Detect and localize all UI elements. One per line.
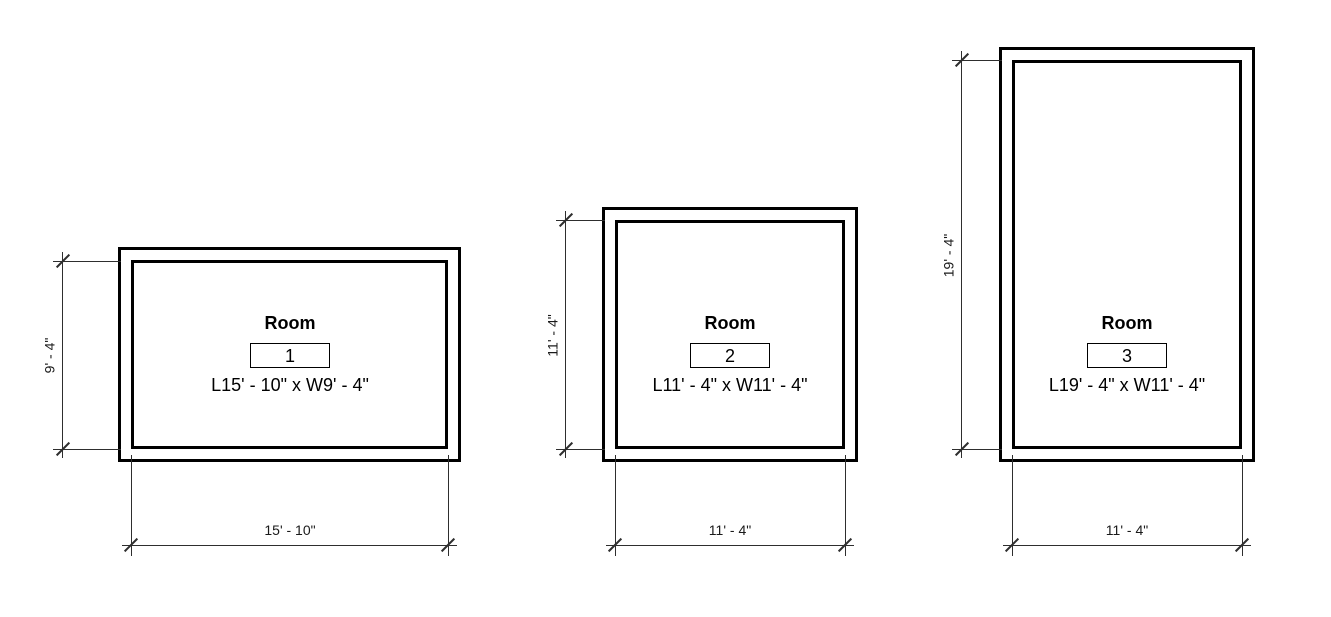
- room-1-number: 1: [285, 347, 295, 365]
- dimension-line: [961, 51, 962, 458]
- dimension-line: [62, 252, 63, 458]
- room-2-size-label: L11' - 4" x W11' - 4": [652, 375, 807, 395]
- dimension-line: [606, 545, 854, 546]
- room-3-number: 3: [1122, 347, 1132, 365]
- room-3-height-dim-label: 19' - 4": [941, 206, 958, 306]
- room-1-height-dim-label: 9' - 4": [42, 306, 59, 406]
- room-3-number-box: 3: [1087, 343, 1167, 368]
- room-1-size-label: L15' - 10" x W9' - 4": [211, 375, 369, 395]
- room-2-height-dim-label: 11' - 4": [545, 286, 562, 386]
- room-3-outer-wall: [999, 47, 1255, 462]
- room-2-width-dim-label: 11' - 4": [670, 522, 790, 539]
- room-3-tag-title: Room: [1102, 313, 1153, 333]
- dimension-line: [1003, 545, 1251, 546]
- room-2-tag: Room 2 L11' - 4" x W11' - 4": [620, 313, 840, 395]
- dimension-line: [565, 211, 566, 458]
- room-2-number: 2: [725, 347, 735, 365]
- room-1-number-box: 1: [250, 343, 330, 368]
- dimension-line: [122, 545, 457, 546]
- room-1-tag: Room 1 L15' - 10" x W9' - 4": [180, 313, 400, 395]
- room-3-size-label: L19' - 4" x W11' - 4": [1049, 375, 1205, 395]
- room-1-tag-title: Room: [265, 313, 316, 333]
- room-3-tag: Room 3 L19' - 4" x W11' - 4": [1017, 313, 1237, 395]
- room-1-width-dim-label: 15' - 10": [230, 522, 350, 539]
- room-3-width-dim-label: 11' - 4": [1067, 522, 1187, 539]
- room-2-number-box: 2: [690, 343, 770, 368]
- floor-plan-canvas: Room 1 L15' - 10" x W9' - 4" 9' - 4" 15'…: [0, 0, 1331, 617]
- room-2-tag-title: Room: [705, 313, 756, 333]
